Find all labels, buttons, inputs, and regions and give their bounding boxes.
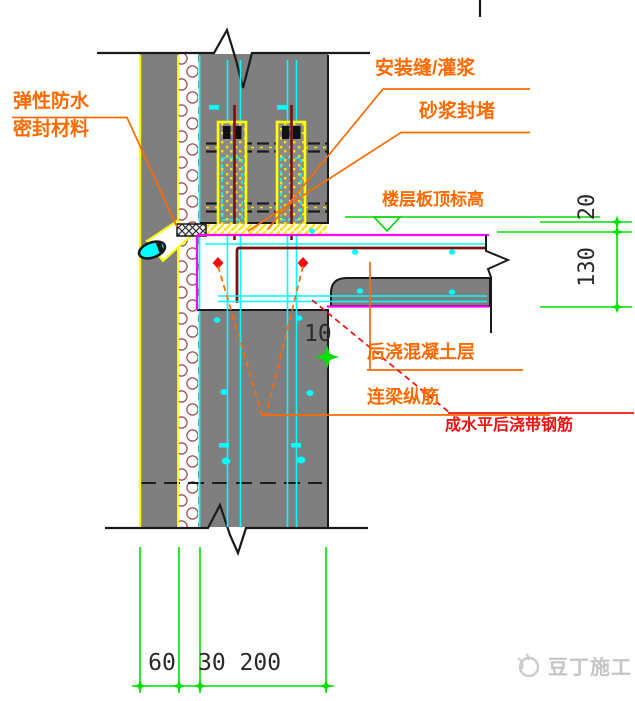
label-coupling-beam-rebar: 连梁纵筋	[367, 388, 439, 408]
douding-logo-icon	[510, 648, 544, 682]
dimension-gap-10: 10	[304, 321, 332, 347]
construction-detail-drawing: 弹性防水 密封材料 安装缝/灌浆 砂浆封堵 楼层板顶标高 后浇混凝土层 连梁纵筋…	[0, 0, 635, 701]
detail-drawing-svg	[0, 0, 635, 701]
label-floor-top-elevation: 楼层板顶标高	[382, 191, 484, 210]
watermark-text: 豆丁施工	[548, 651, 632, 680]
label-elastic-waterproof-line1: 弹性防水	[13, 92, 89, 113]
grout-seam-strip	[205, 224, 327, 235]
elevation-marker	[345, 217, 600, 231]
outer-concrete-leaf	[140, 54, 178, 527]
dimension-slab-130: 130	[573, 237, 603, 297]
dimension-outer-leaf-60: 60	[143, 650, 181, 676]
label-horizontal-band-rebar: 成水平后浇带钢筋	[445, 417, 573, 435]
label-post-cast-concrete-layer: 后浇混凝土层	[367, 343, 475, 363]
label-elastic-waterproof-line2: 密封材料	[13, 120, 89, 141]
dimension-30-200: 30 200	[198, 650, 281, 676]
watermark: 豆丁施工	[510, 648, 632, 682]
grout-sleeve-left	[218, 122, 246, 225]
dimension-seam-20: 20	[573, 187, 603, 227]
label-install-seam-grouting: 安装缝/灌浆	[375, 59, 475, 80]
label-mortar-seal: 砂浆封堵	[419, 102, 495, 123]
